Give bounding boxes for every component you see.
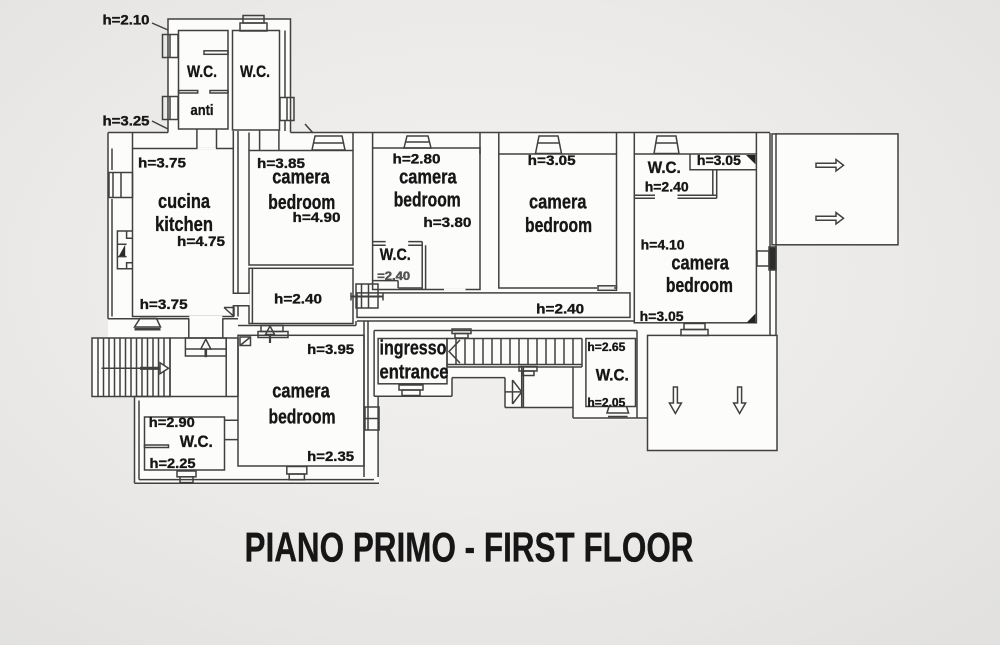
svg-text:h=2.25: h=2.25 [150, 455, 196, 471]
svg-text:=2.40: =2.40 [377, 269, 410, 283]
svg-text:h=3.05: h=3.05 [697, 152, 741, 168]
svg-text:bedroom: bedroom [394, 190, 461, 212]
svg-text:camera: camera [529, 191, 587, 213]
svg-text:h=3.75: h=3.75 [138, 155, 186, 171]
svg-text:h=3.05: h=3.05 [640, 308, 684, 324]
svg-text:h=4.10: h=4.10 [641, 237, 685, 253]
svg-text:h=2.10: h=2.10 [103, 12, 150, 28]
svg-text:h=2.90: h=2.90 [149, 414, 195, 430]
svg-text:bedroom: bedroom [666, 275, 733, 297]
svg-text:bedroom: bedroom [525, 215, 592, 237]
svg-text:W.C.: W.C. [187, 62, 217, 81]
svg-text:h=3.25: h=3.25 [103, 113, 150, 129]
svg-text:anti: anti [191, 102, 214, 119]
svg-text:h=2.35: h=2.35 [307, 448, 354, 464]
svg-text:h=2.05: h=2.05 [587, 396, 625, 410]
svg-text:W.C.: W.C. [596, 366, 629, 385]
svg-text:bedroom: bedroom [269, 407, 336, 429]
svg-text:camera: camera [272, 167, 330, 189]
svg-text:h=2.80: h=2.80 [393, 151, 441, 167]
svg-text:camera: camera [671, 253, 729, 275]
svg-text:entrance: entrance [380, 362, 449, 384]
svg-text:camera: camera [272, 381, 330, 403]
svg-text:W.C.: W.C. [240, 62, 270, 81]
svg-text:h=3.05: h=3.05 [528, 152, 576, 168]
svg-text:h=3.95: h=3.95 [307, 341, 354, 357]
svg-text:W.C.: W.C. [180, 432, 213, 451]
svg-text:h=3.75: h=3.75 [140, 296, 188, 312]
svg-text:h=2.40: h=2.40 [536, 301, 584, 317]
svg-text:W.C.: W.C. [648, 158, 681, 177]
svg-text:camera: camera [399, 167, 457, 189]
svg-text:h=4.75: h=4.75 [177, 233, 225, 249]
svg-text:cucina: cucina [158, 191, 211, 213]
svg-text:h=2.65: h=2.65 [587, 340, 625, 354]
svg-text:ingresso: ingresso [380, 338, 447, 360]
svg-text:h=4.90: h=4.90 [293, 209, 341, 225]
svg-text:h=2.40: h=2.40 [645, 179, 689, 195]
svg-text:h=3.80: h=3.80 [423, 214, 471, 230]
svg-text:W.C.: W.C. [380, 245, 411, 264]
svg-text:PIANO PRIMO - FIRST FLOOR: PIANO PRIMO - FIRST FLOOR [245, 524, 694, 571]
svg-text:h=2.40: h=2.40 [274, 291, 322, 307]
